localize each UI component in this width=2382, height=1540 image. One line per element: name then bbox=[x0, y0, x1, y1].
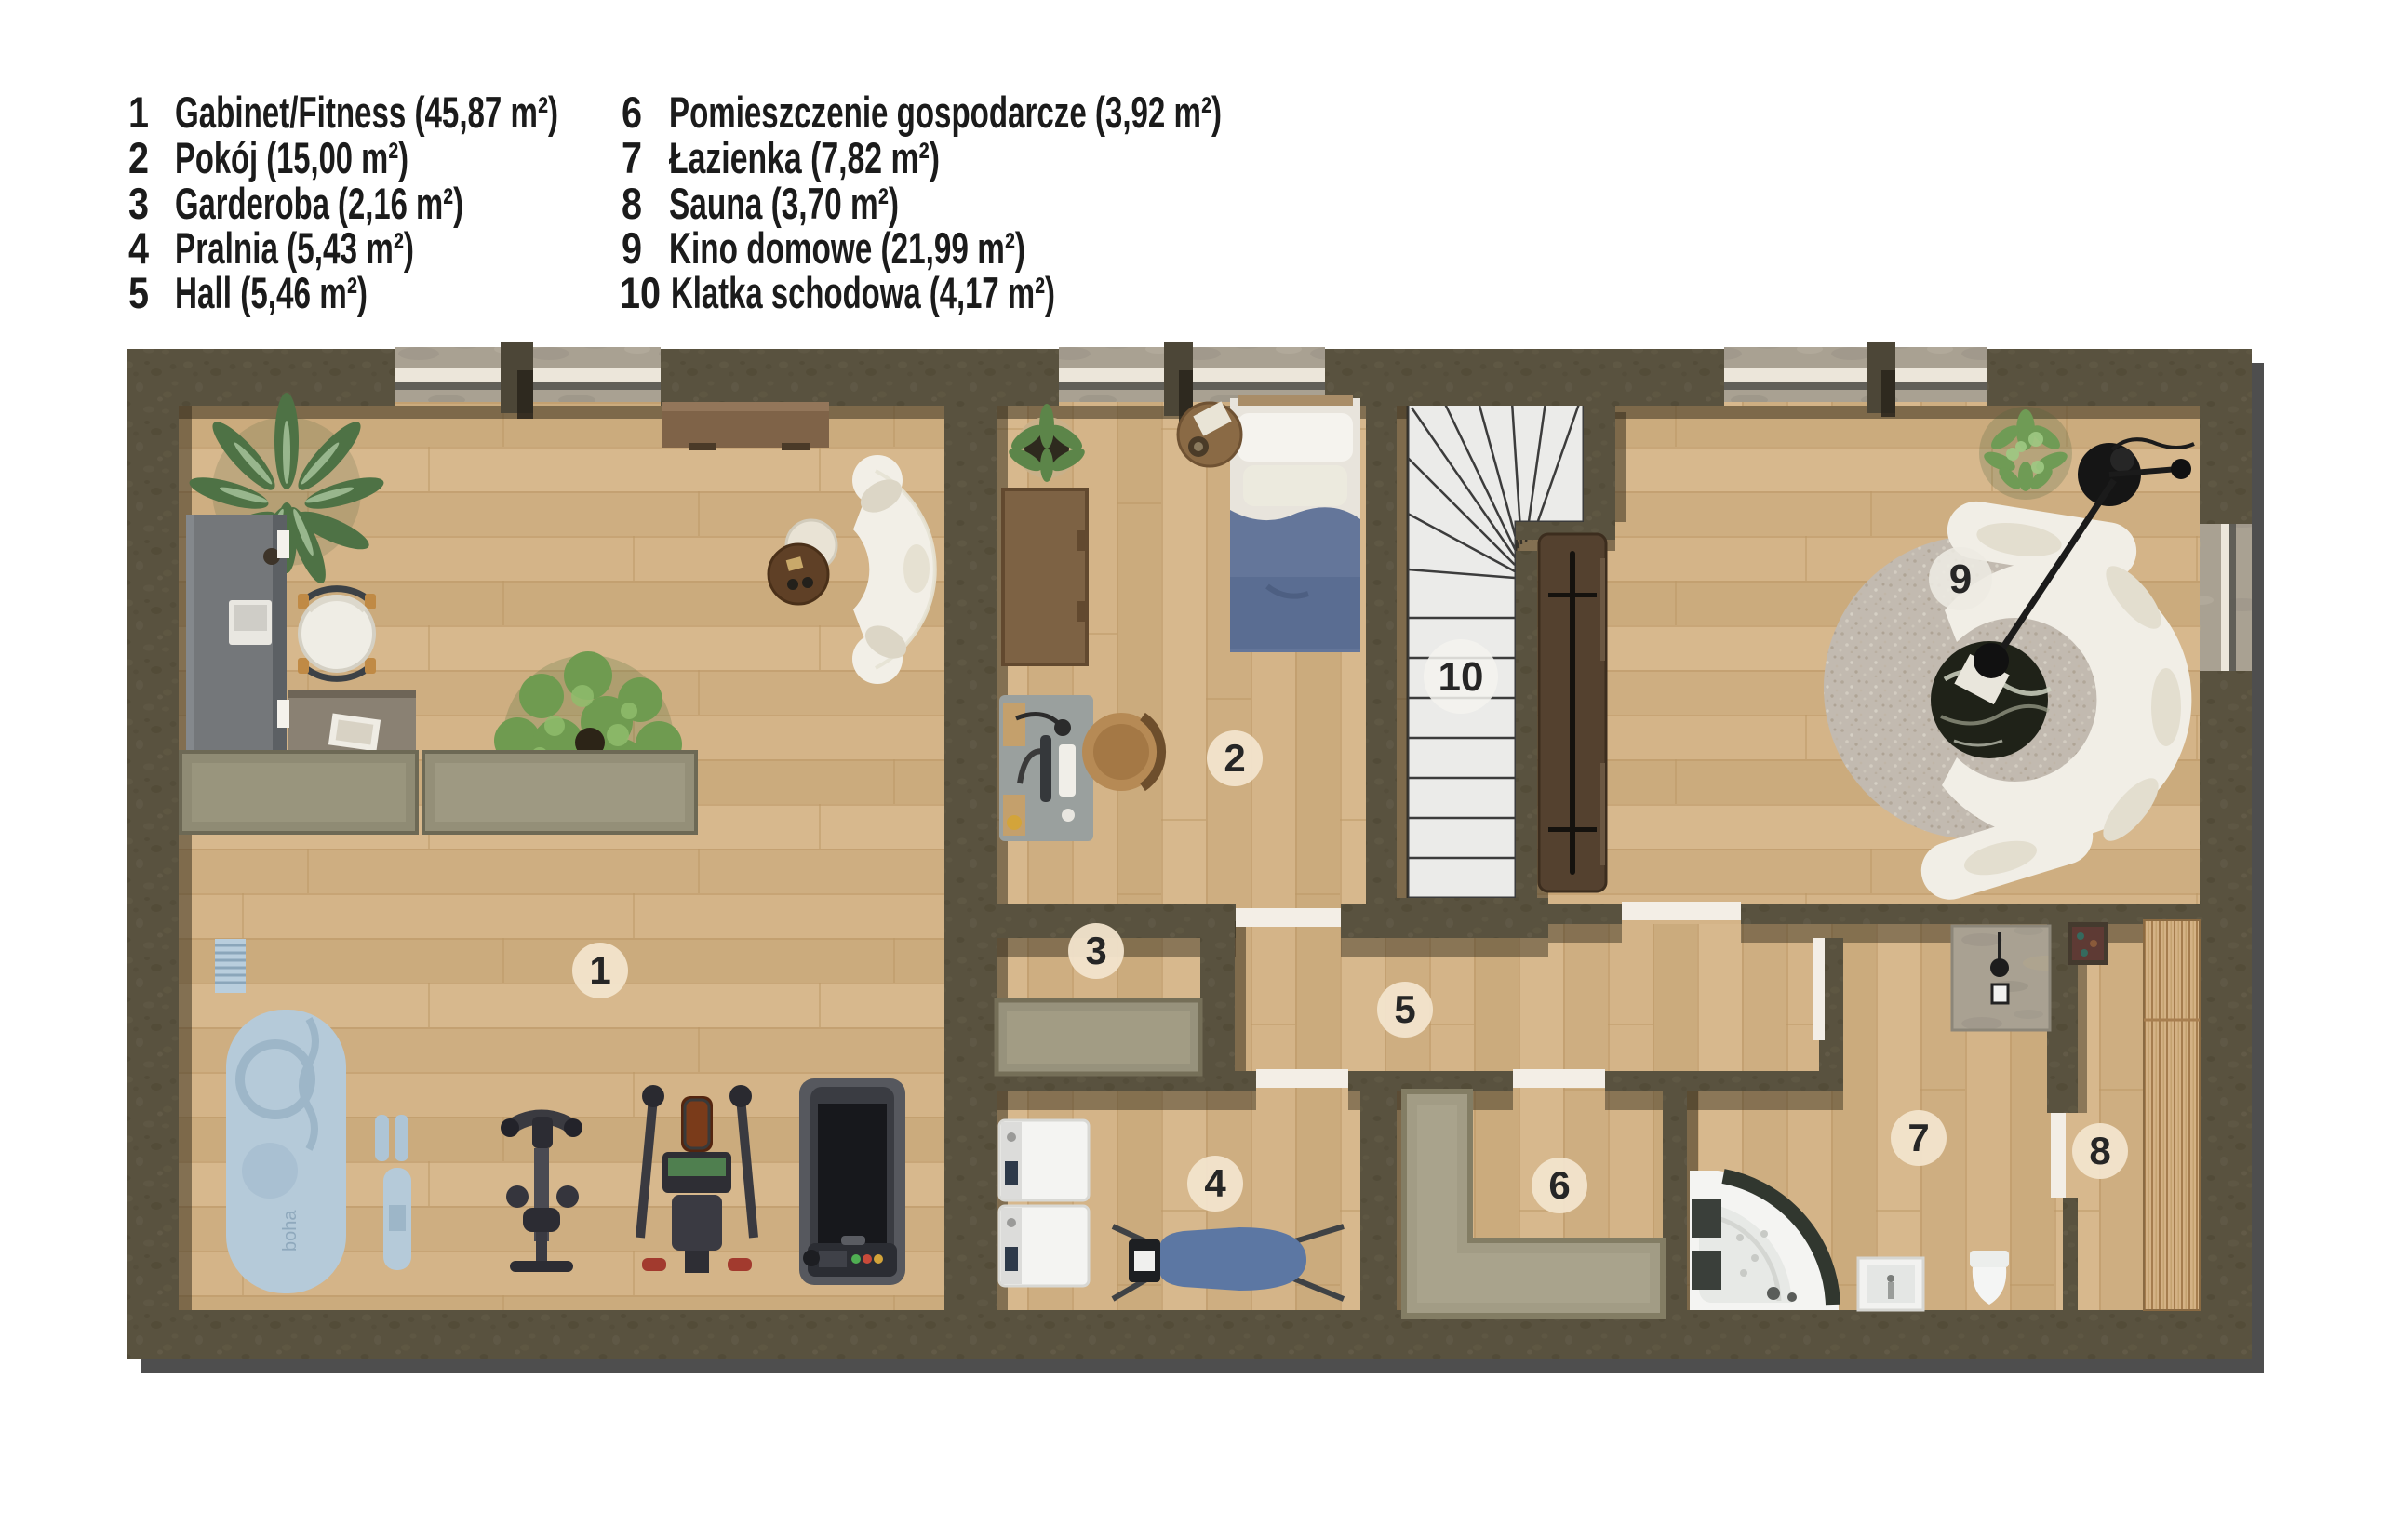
svg-text:10: 10 bbox=[1439, 654, 1484, 700]
svg-text:2: 2 bbox=[128, 133, 149, 182]
svg-text:2: 2 bbox=[1224, 736, 1245, 780]
svg-text:Garderoba (2,16 m²): Garderoba (2,16 m²) bbox=[175, 179, 463, 228]
svg-text:7: 7 bbox=[622, 133, 642, 182]
svg-text:4: 4 bbox=[1204, 1161, 1226, 1205]
svg-text:8: 8 bbox=[2089, 1129, 2110, 1172]
svg-text:1: 1 bbox=[589, 948, 610, 992]
svg-text:Hall (5,46 m²): Hall (5,46 m²) bbox=[175, 268, 368, 317]
svg-text:10: 10 bbox=[620, 268, 661, 317]
svg-text:5: 5 bbox=[1394, 987, 1415, 1031]
svg-text:5: 5 bbox=[128, 268, 149, 317]
svg-text:boha: boha bbox=[280, 1210, 301, 1252]
svg-text:6: 6 bbox=[622, 87, 642, 137]
svg-text:9: 9 bbox=[622, 223, 642, 273]
svg-text:1: 1 bbox=[128, 87, 149, 137]
svg-text:Gabinet/Fitness (45,87 m²): Gabinet/Fitness (45,87 m²) bbox=[175, 87, 558, 137]
svg-text:Pomieszczenie gospodarcze (3,9: Pomieszczenie gospodarcze (3,92 m²) bbox=[669, 87, 1222, 137]
svg-text:Kino domowe (21,99 m²): Kino domowe (21,99 m²) bbox=[669, 223, 1025, 273]
svg-text:4: 4 bbox=[128, 223, 149, 273]
svg-text:7: 7 bbox=[1907, 1116, 1929, 1159]
svg-text:Klatka schodowa (4,17 m²): Klatka schodowa (4,17 m²) bbox=[671, 268, 1055, 317]
svg-text:3: 3 bbox=[1085, 929, 1106, 972]
svg-text:8: 8 bbox=[622, 179, 642, 228]
svg-text:9: 9 bbox=[1949, 556, 1972, 602]
svg-text:3: 3 bbox=[128, 179, 149, 228]
svg-text:Pralnia (5,43 m²): Pralnia (5,43 m²) bbox=[175, 223, 414, 273]
svg-text:Łazienka (7,82 m²): Łazienka (7,82 m²) bbox=[669, 133, 940, 182]
svg-text:Pokój (15,00 m²): Pokój (15,00 m²) bbox=[175, 133, 408, 182]
svg-text:6: 6 bbox=[1548, 1163, 1570, 1207]
svg-text:Sauna (3,70 m²): Sauna (3,70 m²) bbox=[669, 179, 899, 228]
